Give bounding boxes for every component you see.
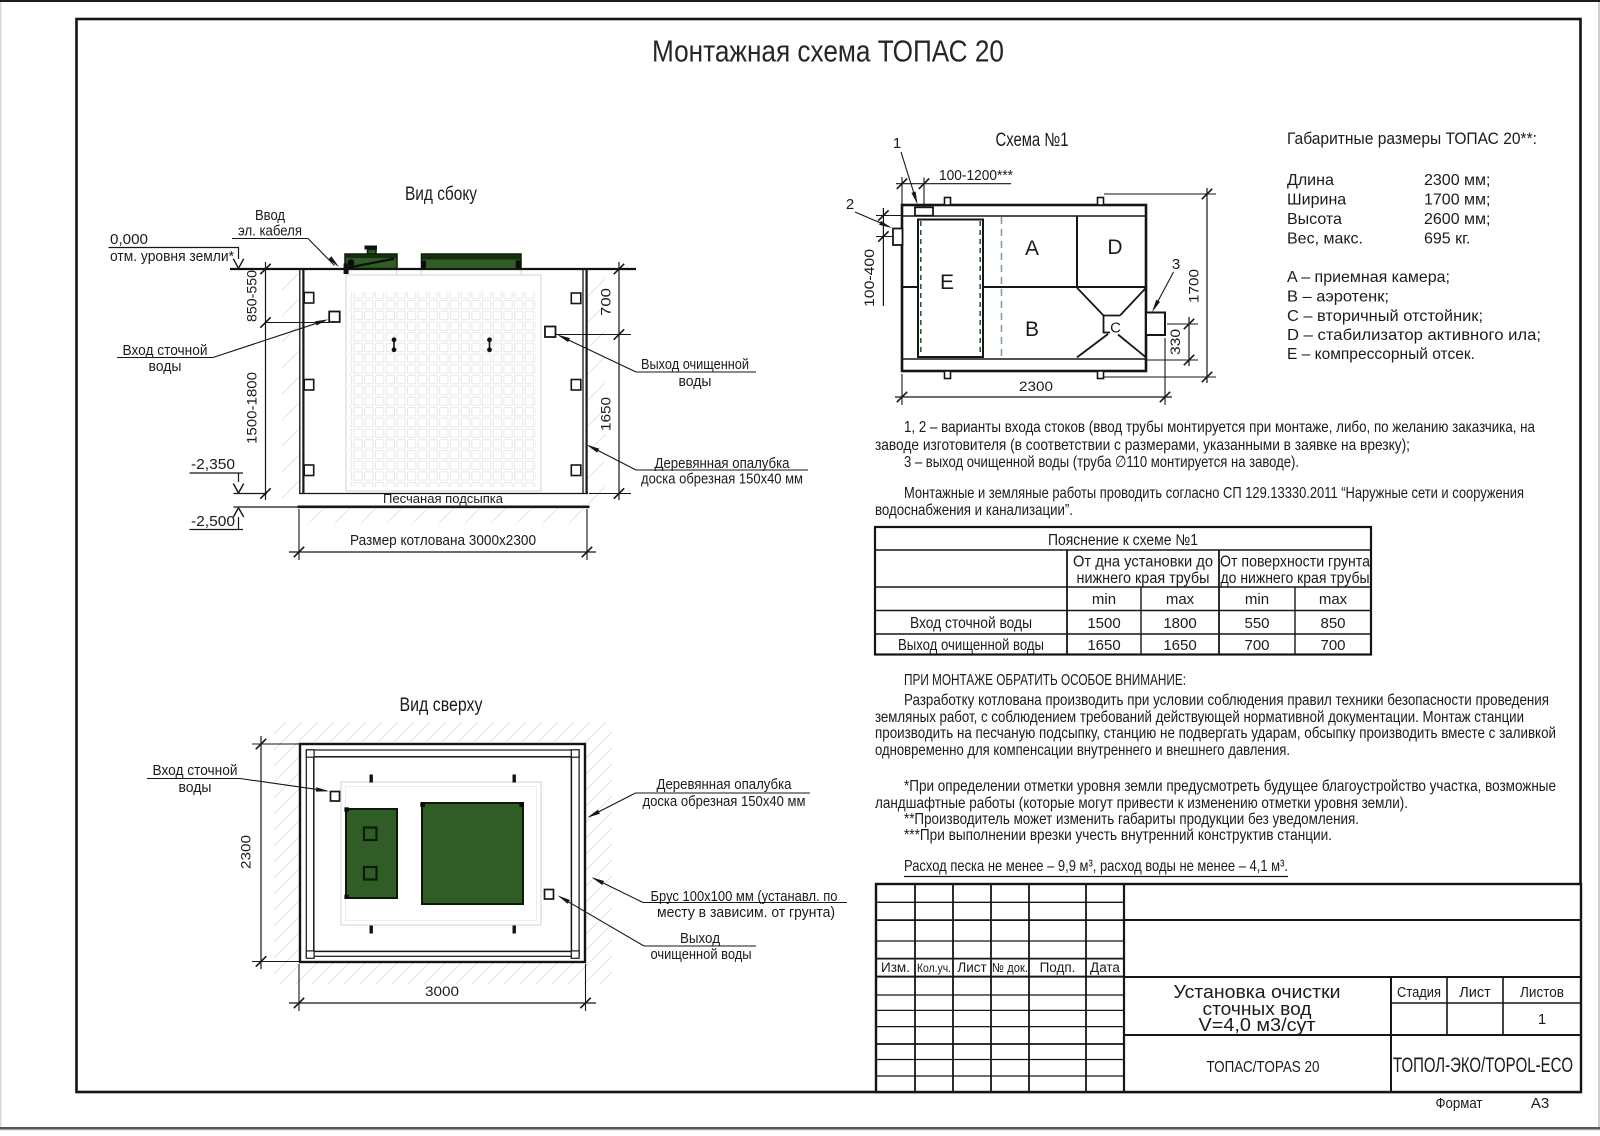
svg-text:одновременно для компенсации в: одновременно для компенсации внутреннего… <box>875 742 1290 759</box>
svg-text:700: 700 <box>1244 637 1269 654</box>
svg-text:***При выполнении врезки учест: ***При выполнении врезки учесть внутренн… <box>904 827 1332 844</box>
svg-text:3 – выход очищенной воды (труб: 3 – выход очищенной воды (труба ∅110 мон… <box>904 454 1299 471</box>
svg-text:воды: воды <box>179 779 212 796</box>
svg-text:ТОПОЛ-ЭКО/TOPOL-ECO: ТОПОЛ-ЭКО/TOPOL-ECO <box>1393 1054 1573 1077</box>
svg-text:Изм.: Изм. <box>881 960 910 975</box>
svg-text:Лист: Лист <box>1459 985 1491 1001</box>
svg-text:Лист: Лист <box>957 960 986 975</box>
svg-text:Стадия: Стадия <box>1397 985 1441 1001</box>
svg-text:1650: 1650 <box>1087 637 1120 654</box>
svg-text:1500-1800: 1500-1800 <box>244 372 260 444</box>
svg-text:100-1200***: 100-1200*** <box>939 167 1013 184</box>
svg-text:ландшафтные работы (которые мо: ландшафтные работы (которые могут привес… <box>875 795 1408 812</box>
svg-text:min: min <box>1245 591 1269 608</box>
svg-text:производить на песчаную подсып: производить на песчаную подсыпку, станци… <box>875 725 1556 742</box>
svg-text:1, 2 – варианты входа стоков: 1, 2 – варианты входа стоков (ввод трубы… <box>904 419 1535 436</box>
svg-text:От дна установки до: От дна установки до <box>1073 554 1213 571</box>
svg-text:2300: 2300 <box>1019 378 1053 394</box>
svg-text:доска обрезная 150х40 мм: доска обрезная 150х40 мм <box>641 471 803 488</box>
svg-text:850: 850 <box>1320 615 1345 632</box>
svg-text:B: B <box>1025 318 1039 341</box>
svg-text:Кол.уч.: Кол.уч. <box>917 961 951 975</box>
svg-text:700: 700 <box>598 288 614 316</box>
svg-text:Деревянная опалубка: Деревянная опалубка <box>657 776 793 793</box>
svg-text:Формат: Формат <box>1436 1095 1483 1112</box>
svg-text:доска обрезная 150х40 мм: доска обрезная 150х40 мм <box>643 793 806 810</box>
svg-text:отм. уровня земли*: отм. уровня земли* <box>110 248 234 265</box>
svg-text:1: 1 <box>893 135 901 152</box>
svg-text:2300 мм;: 2300 мм; <box>1424 172 1490 189</box>
svg-text:Вход сточной: Вход сточной <box>123 342 208 359</box>
svg-text:От поверхности грунта: От поверхности грунта <box>1220 554 1370 571</box>
svg-text:очищенной воды: очищенной воды <box>651 946 752 963</box>
svg-text:Высота: Высота <box>1287 211 1342 228</box>
svg-text:Листов: Листов <box>1520 985 1564 1001</box>
svg-text:воды: воды <box>149 358 182 375</box>
svg-text:Вход сточной воды: Вход сточной воды <box>910 615 1032 632</box>
svg-text:E: E <box>940 271 954 294</box>
svg-text:695 кг.: 695 кг. <box>1424 231 1470 248</box>
svg-text:A – приемная камера;: A – приемная камера; <box>1287 269 1450 286</box>
svg-text:*При определении отметки уровн: *При определении отметки уровня земли пр… <box>904 778 1556 795</box>
svg-text:Разработку котлована производи: Разработку котлована производить при усл… <box>904 692 1549 709</box>
svg-text:E – компрессорный отсек.: E – компрессорный отсек. <box>1287 346 1475 363</box>
svg-text:ПРИ МОНТАЖЕ ОБРАТИТЬ ОСОБОЕ ВН: ПРИ МОНТАЖЕ ОБРАТИТЬ ОСОБОЕ ВНИМАНИЕ: <box>904 672 1186 689</box>
svg-text:Выход очищенной: Выход очищенной <box>641 356 749 373</box>
svg-text:3000: 3000 <box>425 983 459 999</box>
svg-text:Размер котлована 3000х2300: Размер котлована 3000х2300 <box>350 532 536 549</box>
svg-text:эл. кабеля: эл. кабеля <box>238 223 302 240</box>
svg-text:Вес, макс.: Вес, макс. <box>1287 231 1363 248</box>
svg-text:Пояснение к схеме №1: Пояснение к схеме №1 <box>1048 532 1198 549</box>
svg-text:1800: 1800 <box>1163 615 1196 632</box>
svg-text:**Производитель может изменить: **Производитель может изменить габариты … <box>904 811 1359 828</box>
svg-text:Ширина: Ширина <box>1287 192 1346 209</box>
svg-text:C: C <box>1110 320 1121 337</box>
svg-text:1: 1 <box>1538 1011 1546 1028</box>
svg-text:550: 550 <box>1244 615 1269 632</box>
svg-text:1650: 1650 <box>598 397 614 431</box>
svg-text:1700 мм;: 1700 мм; <box>1424 192 1490 209</box>
svg-text:330: 330 <box>1167 329 1183 355</box>
svg-text:Подп.: Подп. <box>1040 960 1076 975</box>
svg-text:водоснабжения и канализации”.: водоснабжения и канализации”. <box>875 502 1073 519</box>
svg-text:Монтажные и земляные работы пр: Монтажные и земляные работы проводить со… <box>904 485 1524 502</box>
svg-text:B – аэротенк;: B – аэротенк; <box>1287 289 1389 306</box>
svg-text:Выход: Выход <box>680 930 720 947</box>
svg-text:2300: 2300 <box>238 835 254 869</box>
svg-text:Ввод: Ввод <box>255 207 285 224</box>
svg-text:0,000: 0,000 <box>110 231 148 248</box>
svg-text:воды: воды <box>679 373 712 390</box>
svg-text:-2,350: -2,350 <box>191 456 235 473</box>
svg-text:Расход песка не менее – 9,9 м³: Расход песка не менее – 9,9 м³, расход в… <box>904 858 1288 875</box>
svg-text:Выход очищенной воды: Выход очищенной воды <box>898 637 1044 654</box>
svg-text:Габаритные размеры ТОПАС 20**:: Габаритные размеры ТОПАС 20**: <box>1287 129 1537 148</box>
svg-text:2: 2 <box>846 196 854 213</box>
svg-text:-2,500: -2,500 <box>191 513 235 530</box>
svg-text:заводе изготовителя (в соответ: заводе изготовителя (в соответствии с ра… <box>875 437 1410 454</box>
svg-text:max: max <box>1166 591 1195 608</box>
svg-text:Длина: Длина <box>1287 172 1334 189</box>
svg-text:Дата: Дата <box>1090 960 1120 975</box>
svg-text:3: 3 <box>1172 256 1180 273</box>
svg-text:850-550: 850-550 <box>244 270 260 322</box>
svg-text:земляных работ, с соблюдением: земляных работ, с соблюдением требований… <box>875 709 1524 726</box>
svg-text:1650: 1650 <box>1163 637 1196 654</box>
svg-text:D – стабилизатор активного ила: D – стабилизатор активного ила; <box>1287 327 1541 344</box>
svg-text:2600 мм;: 2600 мм; <box>1424 211 1490 228</box>
svg-text:min: min <box>1092 591 1116 608</box>
svg-text:Монтажная схема ТОПАС 20: Монтажная схема ТОПАС 20 <box>652 34 1004 69</box>
svg-text:Вход сточной: Вход сточной <box>153 762 238 779</box>
svg-text:Вид сбоку: Вид сбоку <box>405 184 477 205</box>
svg-text:ТОПАС/TOPAS 20: ТОПАС/TOPAS 20 <box>1207 1059 1320 1076</box>
svg-text:Вид сверху: Вид сверху <box>400 695 483 716</box>
svg-text:1500: 1500 <box>1087 615 1120 632</box>
svg-text:№ док.: № док. <box>992 960 1028 975</box>
svg-text:100-400: 100-400 <box>861 249 877 307</box>
svg-text:нижнего края трубы: нижнего края трубы <box>1077 570 1210 587</box>
svg-text:А3: А3 <box>1531 1095 1549 1112</box>
svg-text:max: max <box>1319 591 1348 608</box>
svg-text:1700: 1700 <box>1186 269 1202 303</box>
svg-text:Схема №1: Схема №1 <box>996 130 1069 151</box>
svg-text:A: A <box>1025 237 1039 260</box>
svg-text:V=4,0 м3/сут: V=4,0 м3/сут <box>1199 1015 1316 1035</box>
svg-text:700: 700 <box>1320 637 1345 654</box>
svg-text:месту в зависим. от грунта): месту в зависим. от грунта) <box>657 904 835 921</box>
svg-text:D: D <box>1107 236 1122 259</box>
svg-text:до нижнего края трубы: до нижнего края трубы <box>1221 570 1370 587</box>
svg-text:C – вторичный отстойник;: C – вторичный отстойник; <box>1287 308 1483 325</box>
svg-text:Песчаная подсыпка: Песчаная подсыпка <box>383 491 504 506</box>
